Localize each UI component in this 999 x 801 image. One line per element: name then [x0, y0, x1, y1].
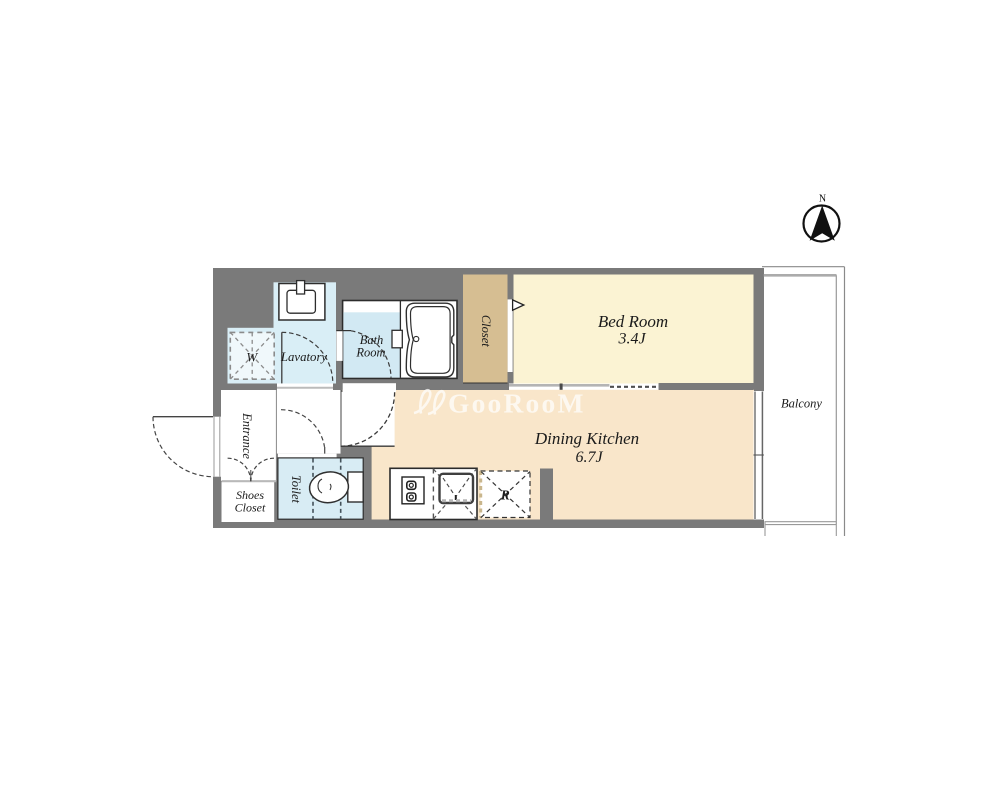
- svg-text:Toilet: Toilet: [289, 475, 303, 504]
- svg-text:Room: Room: [355, 345, 385, 359]
- svg-text:W: W: [246, 350, 258, 365]
- svg-text:6.7J: 6.7J: [575, 449, 603, 466]
- svg-text:R: R: [500, 488, 510, 503]
- svg-text:3.4J: 3.4J: [617, 331, 646, 348]
- svg-text:N: N: [819, 194, 826, 205]
- svg-text:Lavatory: Lavatory: [280, 350, 328, 364]
- svg-text:Closet: Closet: [235, 500, 266, 514]
- svg-text:GooRooM: GooRooM: [448, 388, 586, 419]
- svg-text:Closet: Closet: [479, 315, 493, 347]
- svg-text:Bed Room: Bed Room: [598, 312, 668, 331]
- svg-text:Balcony: Balcony: [781, 397, 822, 411]
- svg-text:Entrance: Entrance: [240, 412, 254, 459]
- svg-text:Dining Kitchen: Dining Kitchen: [534, 429, 639, 448]
